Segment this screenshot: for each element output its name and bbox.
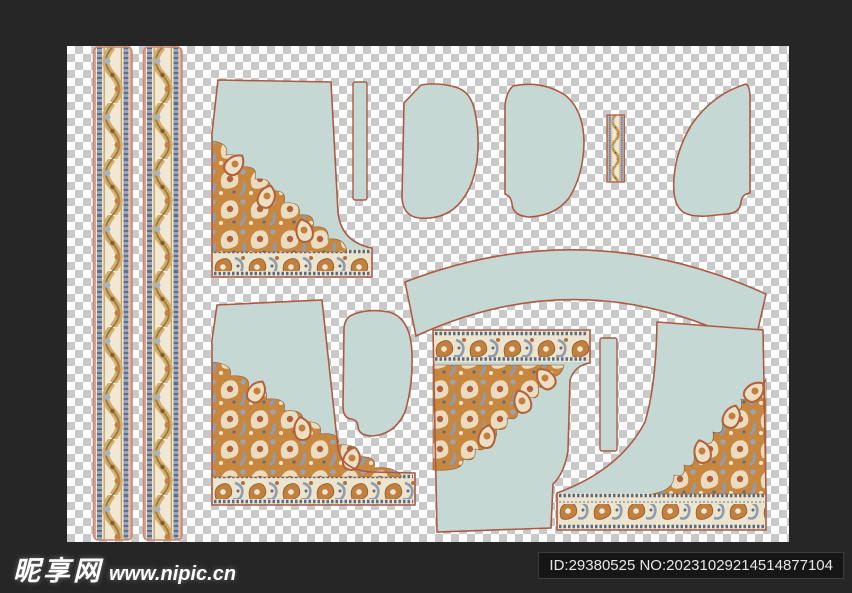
mini-border-strip-top <box>607 115 624 182</box>
front-panel-top-left <box>212 80 372 277</box>
top-border-bottom-middle <box>434 331 589 362</box>
hem-border-bottom-right <box>558 493 765 529</box>
transparency-canvas <box>67 46 789 542</box>
facing-strip-bottom <box>600 338 617 451</box>
site-logo: 昵享网www.nipic.cn <box>13 549 236 588</box>
sleeve-bottom <box>343 311 412 436</box>
watermark-bar: 昵享网www.nipic.cn ID:29380525 NO:202310292… <box>0 543 852 593</box>
border-strip-left-2 <box>144 47 183 540</box>
pattern-pieces-drawing <box>67 46 789 542</box>
hem-border-top-left <box>213 249 371 276</box>
side-panel-top-right <box>674 84 750 216</box>
facing-strip-top <box>353 82 367 200</box>
image-id-badge: ID:29380525 NO:20231029214514877104 <box>538 552 844 579</box>
stock-preview-image: 昵享网www.nipic.cn ID:29380525 NO:202310292… <box>0 0 852 593</box>
sleeve-top-2 <box>505 84 584 217</box>
hem-border-bottom-left <box>213 474 414 504</box>
sleeve-top-1 <box>402 84 478 218</box>
site-logo-url: www.nipic.cn <box>109 563 236 585</box>
border-strip-left-1 <box>94 47 133 540</box>
site-logo-cn: 昵享网 <box>13 556 103 586</box>
